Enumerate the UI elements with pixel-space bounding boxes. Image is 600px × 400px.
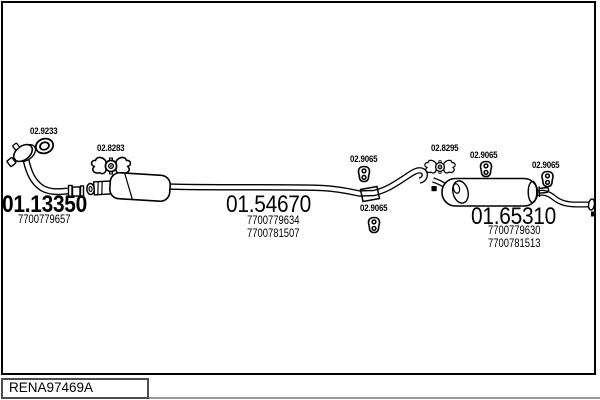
hanger-icon	[542, 172, 553, 187]
plate-code-label: RENA97469A	[3, 380, 147, 396]
oe-number-label: 7700779634	[247, 215, 299, 227]
tailpipe-drawing	[588, 199, 596, 217]
marker-dot	[432, 186, 437, 191]
fitting-code-label: 02.9233	[30, 127, 57, 136]
plate-code-box: RENA97469A	[1, 378, 149, 399]
bottom-edge-line	[149, 397, 600, 399]
fitting-code-label: 02.9065	[532, 161, 559, 170]
marker-dot	[591, 212, 596, 217]
rear-muffler-drawing	[433, 179, 590, 207]
fitting-code-label: 02.8295	[431, 144, 458, 153]
clamp-icon	[92, 157, 131, 174]
clamp-icon	[425, 160, 455, 173]
fitting-code-label: 02.9065	[360, 204, 387, 213]
oe-number-label: 7700779630	[488, 225, 540, 237]
center-muffler-drawing	[86, 172, 170, 202]
oe-number-label: 7700781513	[488, 238, 540, 250]
oe-number-label: 7700781507	[247, 228, 299, 240]
catalog-plate: 02.9233 02.8283 02.9065 02.9065 02.8295 …	[0, 0, 600, 400]
front-flange	[1, 136, 38, 171]
gasket-ring-icon	[34, 136, 55, 155]
part-number-center-muffler[interactable]: 01.54670	[226, 192, 311, 217]
fitting-code-label: 02.9065	[470, 151, 497, 160]
hanger-icon	[359, 167, 370, 182]
hanger-icon	[481, 162, 492, 177]
oe-number-label: 7700779657	[18, 214, 70, 226]
hanger-icon	[369, 218, 380, 233]
fitting-code-label: 02.9065	[350, 155, 377, 164]
fitting-code-label: 02.8283	[97, 144, 124, 153]
